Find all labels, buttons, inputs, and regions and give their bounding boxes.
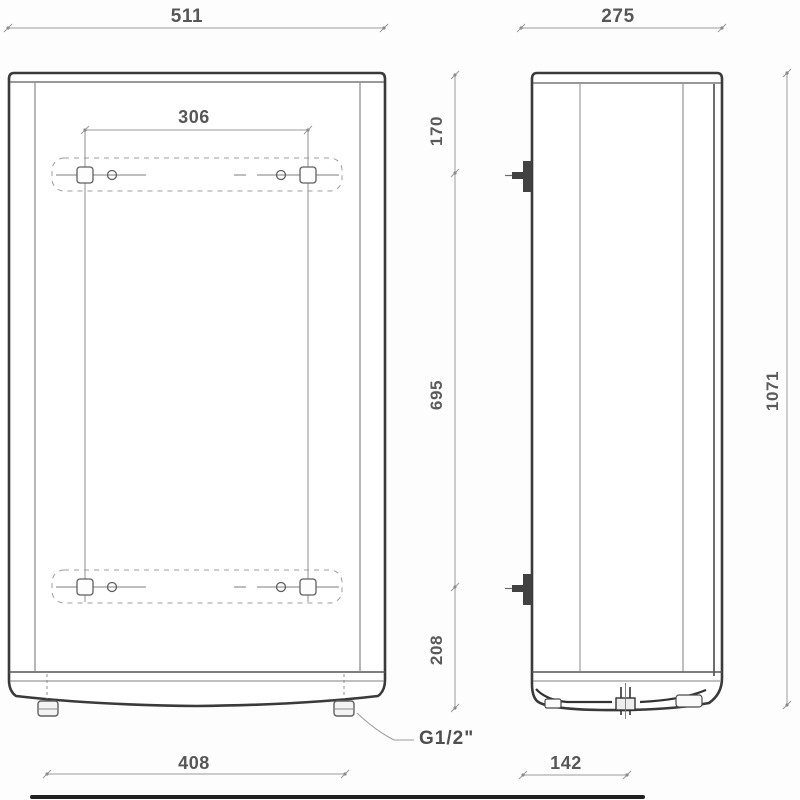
dimension-front-width: 511: [157, 8, 217, 26]
connection-thread-label: G1/2": [419, 729, 474, 749]
upper-wall-bracket: [505, 161, 532, 192]
scan-artifact-strip: [30, 795, 645, 799]
lower-wall-bracket: [505, 574, 532, 605]
leader-line-g12: [357, 713, 414, 740]
dimension-lower-hole-to-bottom: 208: [428, 620, 446, 680]
dimension-top-to-upper-hole: 170: [428, 101, 446, 161]
dimension-total-height: 1071: [764, 361, 782, 421]
side-view: [505, 73, 722, 719]
dimension-hole-spacing-horizontal: 306: [164, 108, 224, 126]
dimension-drawing-page: 511 275 306 170 695 208 1071 408 142 G1/…: [0, 0, 800, 800]
dimension-feet-spacing: 408: [164, 754, 224, 772]
dimension-side-depth: 275: [588, 8, 648, 26]
technical-drawing: [0, 0, 800, 800]
side-body-outline: [532, 73, 722, 710]
front-view: [9, 73, 385, 716]
dimension-pipe-offset: 142: [536, 754, 596, 772]
front-body-outline: [9, 73, 385, 706]
dimension-upper-to-lower-hole: 695: [428, 365, 446, 425]
